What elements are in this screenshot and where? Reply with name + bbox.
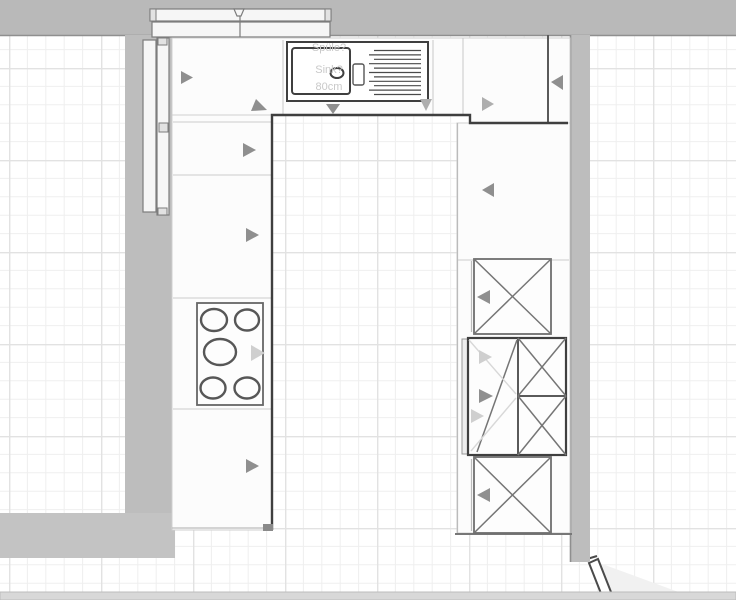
panel-cap-bottom bbox=[158, 208, 167, 215]
sink-label-en: Sink? bbox=[315, 64, 343, 76]
wall-bottom-left bbox=[0, 513, 175, 558]
wall-cabinet-row[interactable] bbox=[152, 22, 330, 37]
floor-plan-svg: Spüle? Sink? 80cm bbox=[0, 0, 736, 600]
wall-bottom-strip bbox=[0, 592, 736, 600]
cornice-end-cap-right bbox=[325, 9, 331, 21]
panel-handle-icon bbox=[159, 123, 168, 132]
tall-panel-unit[interactable] bbox=[143, 38, 169, 215]
wall-right bbox=[570, 35, 590, 562]
sink-size-label: 80cm bbox=[316, 81, 343, 93]
tall-appliance-cabinet[interactable] bbox=[462, 338, 566, 455]
sink-unit[interactable]: Spüle? Sink? 80cm bbox=[287, 42, 428, 101]
wall-top bbox=[0, 0, 736, 35]
kitchen-floor-plan-canvas: Spüle? Sink? 80cm bbox=[0, 0, 736, 600]
cornice-end-cap-left bbox=[150, 9, 156, 21]
sink-tap-icon bbox=[353, 64, 364, 85]
panel-cap-top bbox=[158, 38, 167, 45]
sink-label-de: Spüle? bbox=[312, 42, 346, 54]
wall-cabinet-rail[interactable] bbox=[150, 9, 331, 37]
left-run-end-cap bbox=[263, 524, 273, 531]
tall-panel-left[interactable] bbox=[143, 40, 156, 212]
